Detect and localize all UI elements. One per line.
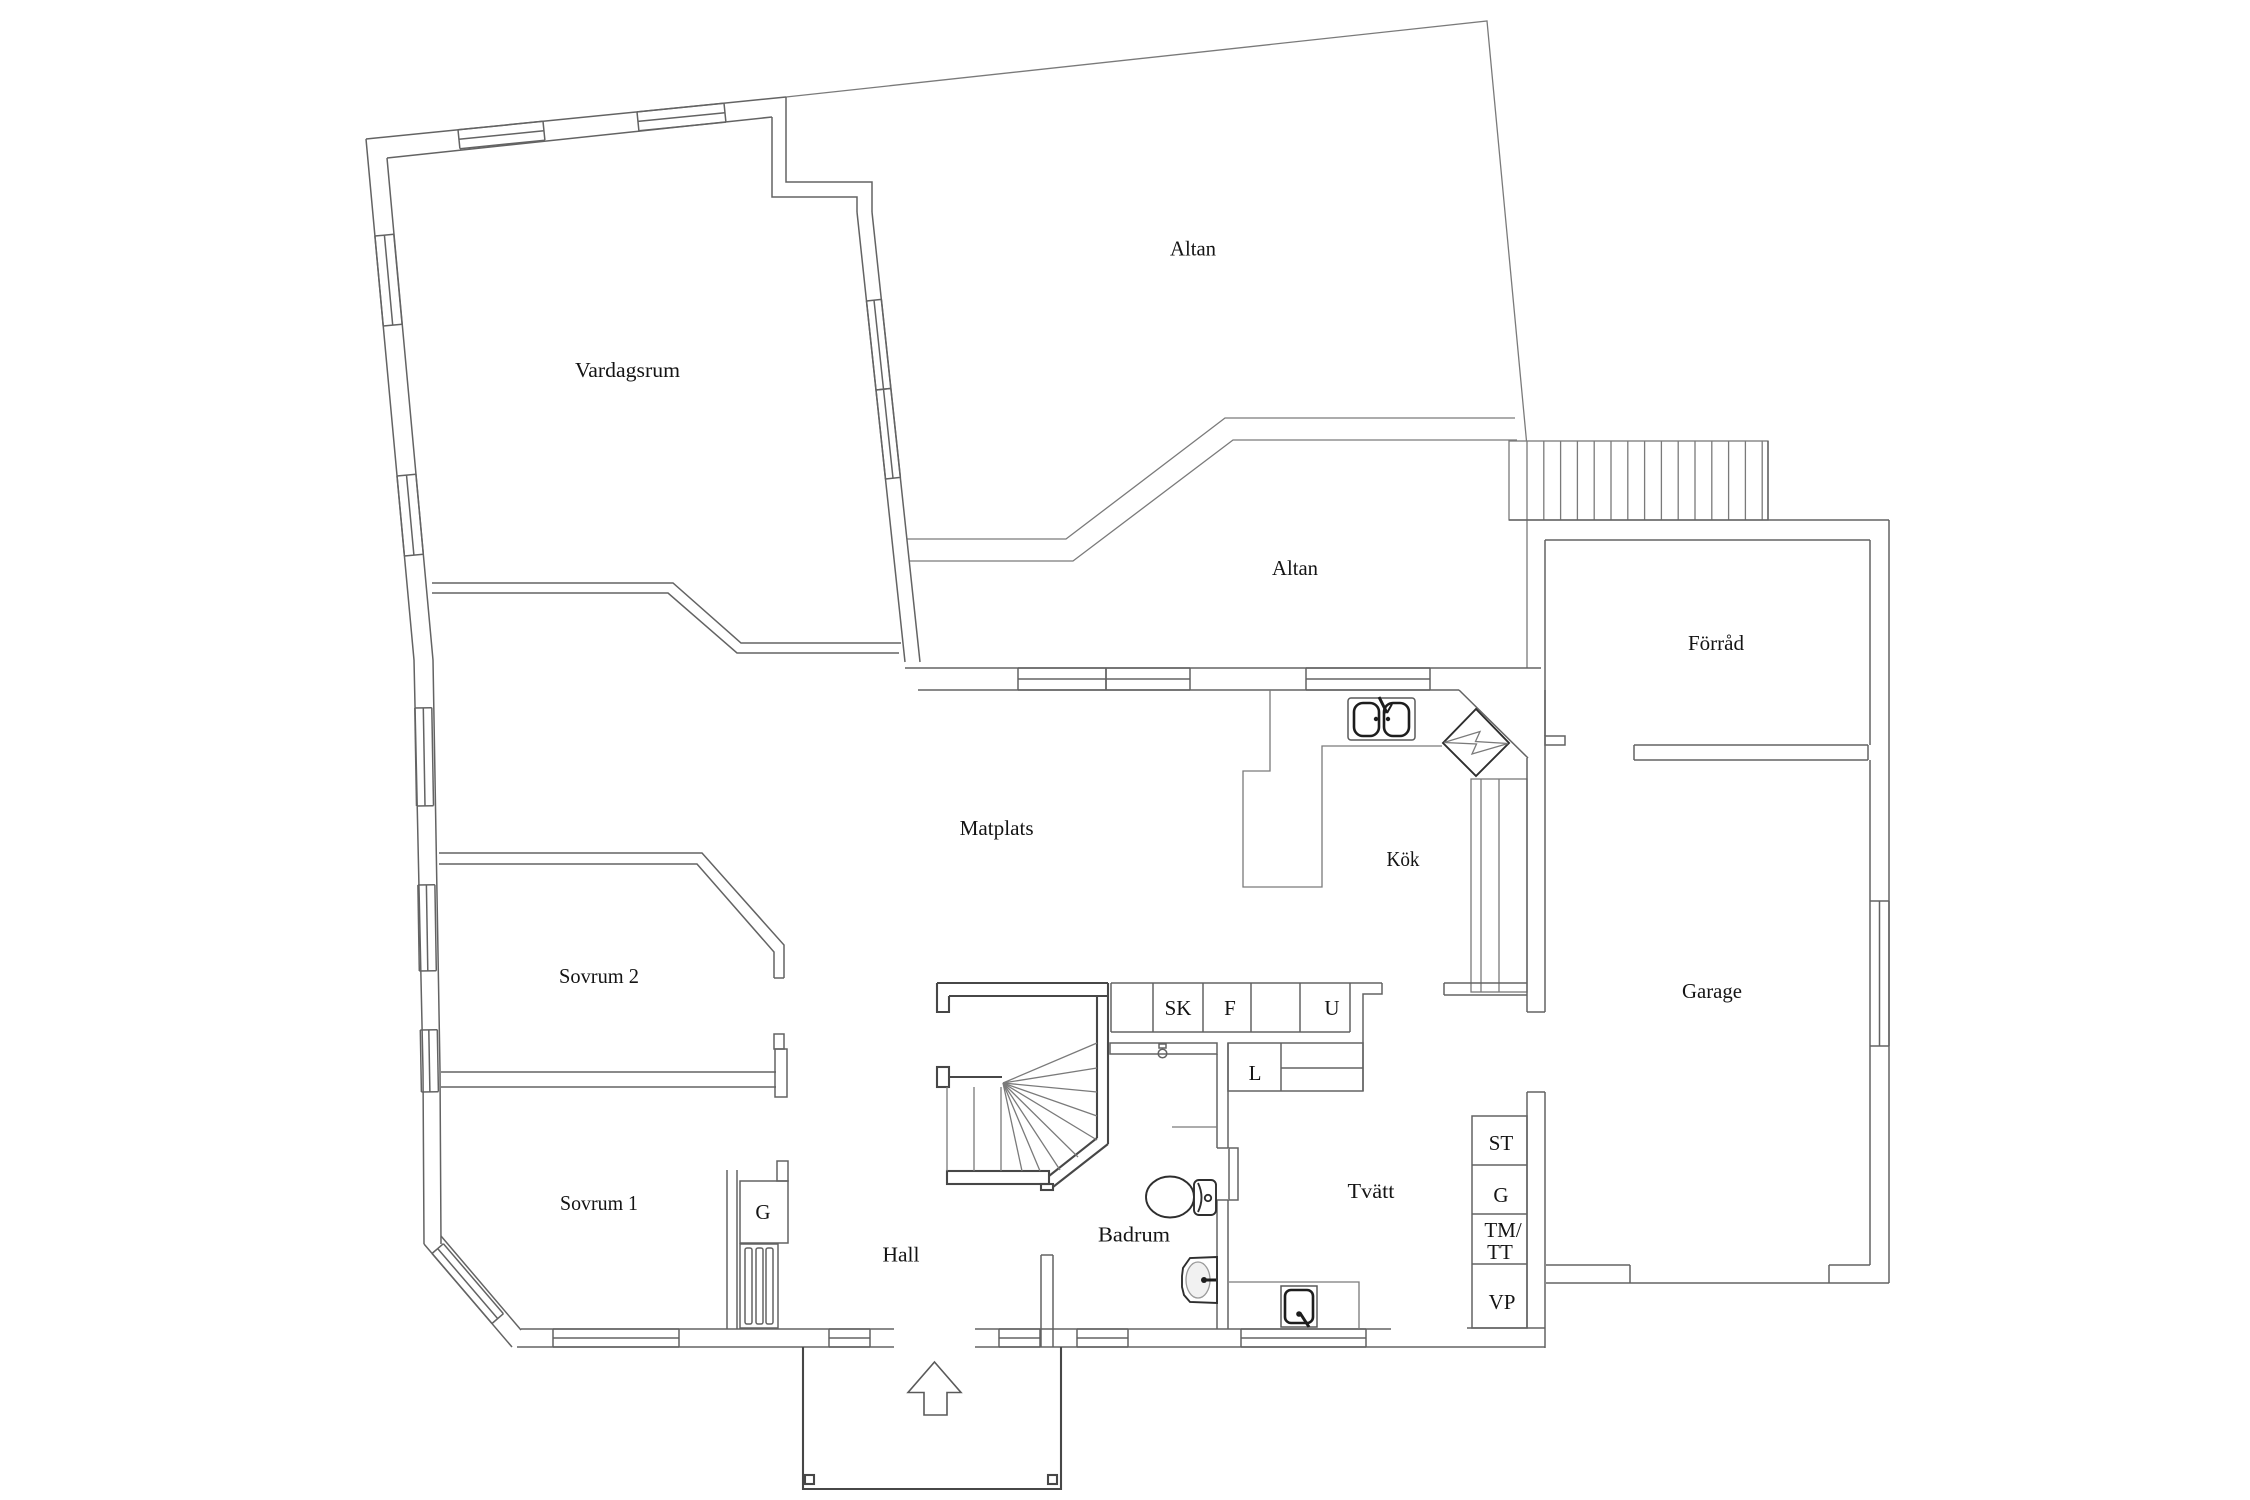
- svg-text:Sovrum 1: Sovrum 1: [560, 1191, 638, 1215]
- svg-text:SK: SK: [1165, 996, 1192, 1020]
- svg-text:U: U: [1324, 996, 1339, 1020]
- svg-text:Badrum: Badrum: [1098, 1223, 1170, 1247]
- svg-text:Matplats: Matplats: [960, 816, 1034, 840]
- svg-text:Altan: Altan: [1170, 237, 1216, 261]
- svg-text:Vardagsrum: Vardagsrum: [575, 358, 680, 382]
- svg-text:F: F: [1224, 996, 1236, 1020]
- svg-text:TM/: TM/: [1484, 1218, 1522, 1242]
- svg-text:Hall: Hall: [883, 1243, 920, 1267]
- svg-text:Altan: Altan: [1272, 556, 1318, 580]
- svg-text:ST: ST: [1489, 1131, 1514, 1155]
- svg-text:Kök: Kök: [1387, 847, 1420, 871]
- svg-text:G: G: [1493, 1183, 1508, 1207]
- svg-text:Förråd: Förråd: [1688, 631, 1744, 655]
- svg-text:TT: TT: [1487, 1240, 1513, 1264]
- svg-text:L: L: [1249, 1061, 1262, 1085]
- svg-text:Garage: Garage: [1682, 979, 1742, 1003]
- svg-text:Sovrum 2: Sovrum 2: [559, 964, 639, 988]
- svg-text:VP: VP: [1489, 1290, 1516, 1314]
- svg-text:Tvätt: Tvätt: [1348, 1179, 1395, 1203]
- svg-text:G: G: [755, 1200, 770, 1224]
